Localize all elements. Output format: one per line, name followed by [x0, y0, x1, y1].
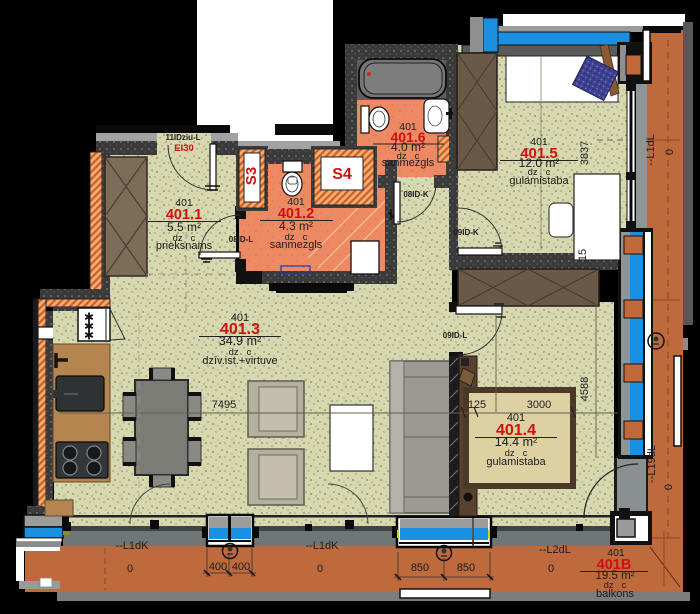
- svg-text:4.3 m²: 4.3 m²: [279, 219, 313, 233]
- svg-text:400: 400: [232, 561, 250, 573]
- svg-text:balkons: balkons: [596, 588, 634, 600]
- svg-text:08ID-K: 08ID-K: [403, 190, 429, 199]
- svg-text:0: 0: [664, 149, 676, 155]
- svg-text:gulamistaba: gulamistaba: [509, 175, 569, 187]
- svg-text:08ID-L: 08ID-L: [229, 235, 254, 244]
- svg-text:--L1dK: --L1dK: [305, 540, 339, 552]
- svg-text:EI30: EI30: [174, 143, 194, 154]
- svg-text:--L19dL: --L19dL: [646, 445, 658, 483]
- svg-text:prieksnams: prieksnams: [156, 240, 213, 252]
- svg-text:14.4 m²: 14.4 m²: [495, 435, 537, 449]
- svg-text:3837: 3837: [579, 141, 591, 165]
- svg-text:gulamistaba: gulamistaba: [486, 456, 546, 468]
- svg-text:S3: S3: [243, 167, 260, 185]
- svg-text:0: 0: [548, 563, 554, 575]
- svg-text:S4: S4: [332, 166, 352, 183]
- svg-text:--L2dL: --L2dL: [539, 544, 571, 556]
- svg-text:125: 125: [468, 399, 486, 411]
- svg-text:--L1dL: --L1dL: [645, 134, 657, 166]
- svg-text:09ID-L: 09ID-L: [443, 331, 468, 340]
- svg-text:11IDziu-L: 11IDziu-L: [165, 133, 200, 142]
- svg-text:3000: 3000: [527, 399, 551, 411]
- svg-text:15: 15: [577, 249, 589, 261]
- svg-text:0: 0: [127, 563, 133, 575]
- svg-text:400: 400: [209, 561, 227, 573]
- svg-text:7495: 7495: [212, 399, 236, 411]
- svg-text:34.9 m²: 34.9 m²: [219, 334, 261, 348]
- svg-text:--L1dK: --L1dK: [115, 540, 149, 552]
- svg-text:09ID-K: 09ID-K: [453, 228, 479, 237]
- svg-text:5.5 m²: 5.5 m²: [167, 220, 201, 234]
- svg-text:sanmezgls: sanmezgls: [382, 157, 435, 169]
- svg-text:0: 0: [317, 563, 323, 575]
- svg-text:850: 850: [411, 562, 429, 574]
- svg-text:dzīv.ist.+virtuve: dzīv.ist.+virtuve: [202, 355, 277, 367]
- svg-text:0: 0: [663, 484, 675, 490]
- svg-text:sanmezgls: sanmezgls: [270, 239, 323, 251]
- svg-text:4588: 4588: [579, 377, 591, 401]
- svg-text:850: 850: [457, 562, 475, 574]
